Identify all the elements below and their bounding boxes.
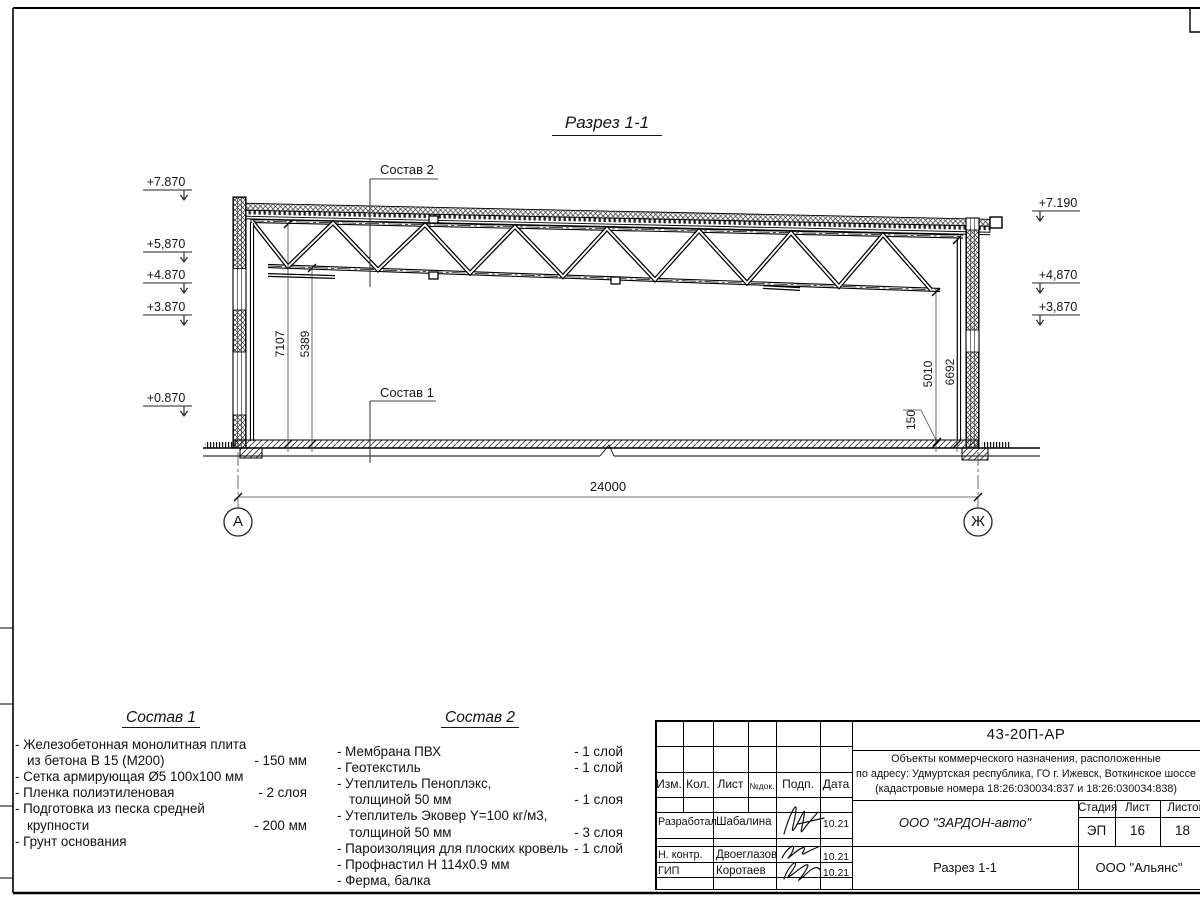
tb-col-list: Лист [713, 777, 748, 791]
list-item: толщиной 50 мм- 3 слоя [337, 825, 623, 841]
dim-7107: 7107 [273, 319, 287, 369]
list-item: - Грунт основания [15, 834, 307, 850]
dim-5010: 5010 [921, 349, 935, 399]
tb-project-line: (кадастровые номера 18:26:030034:837 и 1… [852, 783, 1200, 795]
sostav1-block: Состав 1 - Железобетонная монолитная пли… [15, 710, 307, 850]
list-item: - Геотекстиль- 1 слой [337, 760, 623, 776]
list-item: - Утеплитель Пеноплэкс, [337, 776, 623, 792]
drawing-view-title: Разрез 1-1 [552, 113, 662, 136]
list-item: - Ферма, балка [337, 873, 623, 889]
list-item: крупности- 200 мм [15, 818, 307, 834]
tb-role: Н. контр. [658, 849, 703, 861]
drawing-sheet: Разрез 1-1 Состав 2 Состав 1 +7.870 +5,8… [0, 0, 1200, 900]
tb-role: ГИП [658, 865, 679, 877]
tb-name: Коротаев [716, 865, 766, 877]
callout-sostav1-label: Состав 1 [380, 385, 434, 400]
elevation-value: +7.190 [1032, 196, 1084, 210]
list-item: из бетона В 15 (М200)- 150 мм [15, 753, 307, 769]
tb-sheets-total: 18 [1160, 823, 1200, 838]
list-item: - Подготовка из песка средней [15, 801, 307, 817]
tb-col-podp: Подп. [776, 777, 820, 791]
tb-contractor: ООО "Альянс" [1078, 860, 1200, 875]
tb-date: 10.21 [820, 851, 852, 863]
left-wall [233, 197, 246, 448]
list-item: - Сетка армирующая Ø5 100х100 мм [15, 769, 307, 785]
tb-col-data: Дата [820, 777, 852, 791]
tb-stage-label: Стадия [1078, 802, 1115, 814]
list-item: толщиной 50 мм- 1 слоя [337, 792, 623, 808]
tb-sheet-number: 16 [1115, 823, 1160, 838]
elevation-value: +4.870 [140, 268, 192, 282]
elevation-value: +0.870 [140, 391, 192, 405]
soil-hatch-right [982, 442, 1010, 448]
tb-company: ООО "ЗАРДОН-авто" [852, 815, 1078, 830]
tb-col-kol: Кол. [683, 777, 713, 791]
list-item: - Пленка полиэтиленовая- 2 слоя [15, 785, 307, 801]
elevation-value: +4,870 [1032, 268, 1084, 282]
list-item: - Утеплитель Эковер Y=100 кг/м3, [337, 808, 623, 824]
elevation-value: +5,870 [140, 237, 192, 251]
tb-project-line: Объекты коммерческого назначения, распол… [852, 753, 1200, 765]
sostav2-block: Состав 2 - Мембрана ПВХ- 1 слой - Геотек… [337, 710, 623, 889]
list-item: - Железобетонная монолитная плита [15, 737, 307, 753]
tb-sheet-title: Разрез 1-1 [852, 860, 1078, 875]
axis-label-zh: Ж [966, 513, 990, 530]
tb-sheets-label: Листов [1160, 802, 1200, 814]
elevation-value: +7.870 [140, 175, 192, 189]
right-wall [966, 218, 979, 448]
tb-col-izm: Изм. [655, 777, 683, 791]
footing-right [962, 448, 988, 460]
callout-sostav2-label: Состав 2 [380, 162, 434, 177]
dim-6692: 6692 [943, 347, 957, 397]
dimension-ticks [234, 220, 982, 501]
tb-col-ndok: №док. [748, 781, 776, 791]
tb-date: 10.21 [820, 867, 852, 879]
axis-label-a: А [226, 513, 250, 530]
sostav1-title: Состав 1 [15, 710, 307, 726]
tb-role: Разработал [658, 816, 717, 828]
tb-sheet-label: Лист [1115, 802, 1160, 814]
elevation-value: +3.870 [140, 300, 192, 314]
tb-name: Шабалина [716, 816, 772, 828]
list-item: - Профнастил Н 114х0.9 мм [337, 857, 623, 873]
tb-stage-value: ЭП [1078, 823, 1115, 838]
footing-left [240, 448, 262, 458]
tb-date: 10.21 [820, 818, 852, 830]
sostav2-title: Состав 2 [337, 710, 623, 726]
soil-hatch-left [205, 442, 233, 448]
list-item: - Пароизоляция для плоских кровель- 1 сл… [337, 841, 623, 857]
dimension-lines [238, 224, 978, 508]
list-item: - Мембрана ПВХ- 1 слой [337, 744, 623, 760]
dim-150: 150 [904, 395, 918, 445]
tb-doc-code: 43-20П-АР [852, 726, 1200, 743]
dim-5389: 5389 [298, 319, 312, 369]
axis-bubbles [224, 508, 992, 536]
title-block: Изм. Кол. Лист №док. Подп. Дата 43-20П-А… [655, 720, 1200, 890]
roof-edge-cap [990, 217, 1002, 228]
tb-project-line: по адресу: Удмуртская республика, ГО г. … [852, 768, 1200, 780]
tb-name: Двоеглазов [716, 849, 777, 861]
elevation-value: +3,870 [1032, 300, 1084, 314]
columns [252, 223, 959, 441]
dim-24000: 24000 [570, 479, 646, 494]
